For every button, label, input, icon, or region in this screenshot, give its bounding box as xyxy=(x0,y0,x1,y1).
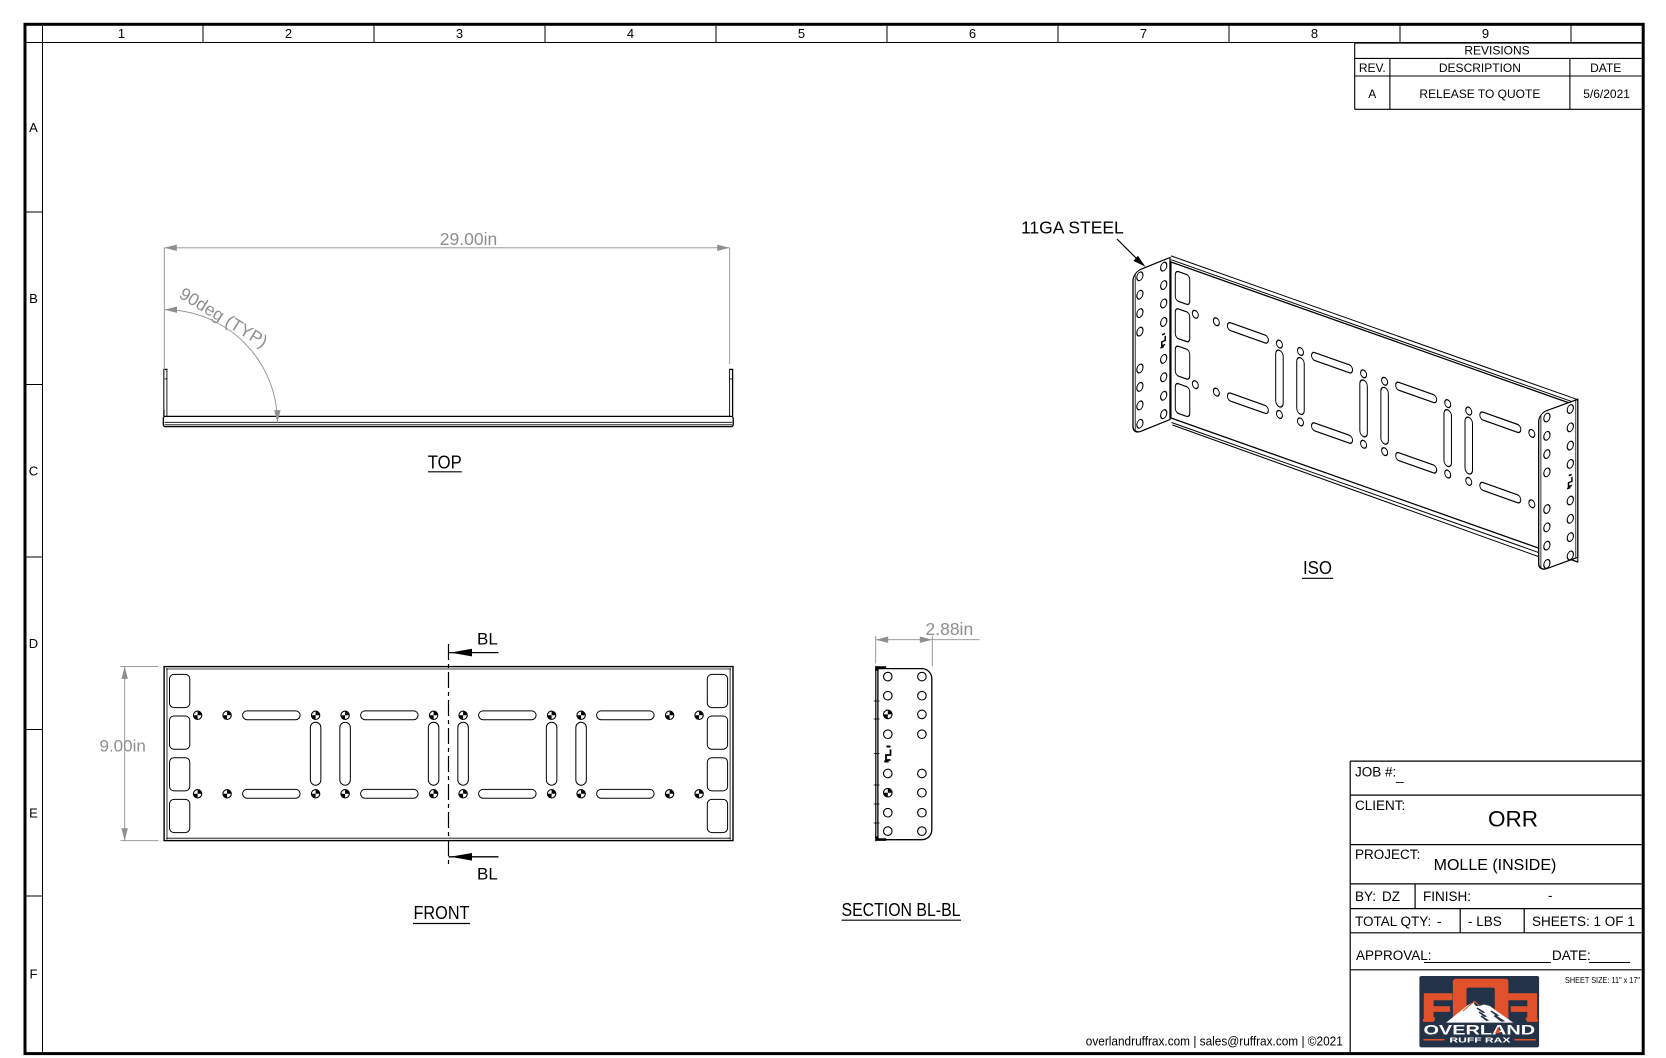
svg-text:PROJECT:: PROJECT: xyxy=(1355,847,1420,862)
svg-text:TOP: TOP xyxy=(428,453,462,473)
svg-text:11GA STEEL: 11GA STEEL xyxy=(1021,218,1124,238)
svg-text:OVERLAND: OVERLAND xyxy=(1423,1021,1535,1037)
svg-text:DATE:: DATE: xyxy=(1552,948,1591,963)
svg-text:6: 6 xyxy=(969,26,976,41)
svg-text:5/6/2021: 5/6/2021 xyxy=(1583,87,1630,101)
svg-text:C: C xyxy=(29,463,38,478)
svg-text:3: 3 xyxy=(456,26,463,41)
svg-text:APPROVAL:: APPROVAL: xyxy=(1356,948,1432,963)
svg-text:5: 5 xyxy=(798,26,805,41)
svg-text:ISO: ISO xyxy=(1303,558,1332,578)
svg-text:MOLLE (INSIDE): MOLLE (INSIDE) xyxy=(1434,857,1557,874)
svg-text:SHEET SIZE: 11" x 17": SHEET SIZE: 11" x 17" xyxy=(1565,975,1640,985)
svg-text:TOTAL QTY:: TOTAL QTY: xyxy=(1355,914,1431,929)
svg-text:DESCRIPTION: DESCRIPTION xyxy=(1439,61,1521,75)
svg-text:E: E xyxy=(29,805,38,820)
svg-text:9: 9 xyxy=(1482,26,1489,41)
svg-text:2: 2 xyxy=(285,26,292,41)
svg-text:4: 4 xyxy=(627,26,634,41)
svg-text:CLIENT:: CLIENT: xyxy=(1355,798,1405,813)
svg-text:ORR: ORR xyxy=(1488,807,1538,832)
svg-text:29.00in: 29.00in xyxy=(440,229,497,249)
svg-text:_: _ xyxy=(1395,768,1404,783)
svg-text:-: - xyxy=(1548,888,1553,903)
svg-text:9.00in: 9.00in xyxy=(100,736,146,755)
svg-text:1: 1 xyxy=(118,26,125,41)
svg-text:DATE: DATE xyxy=(1590,61,1621,75)
svg-text:REV.: REV. xyxy=(1359,61,1386,75)
svg-text:7: 7 xyxy=(1140,26,1147,41)
svg-text:DZ: DZ xyxy=(1382,889,1400,904)
svg-text:RELEASE TO QUOTE: RELEASE TO QUOTE xyxy=(1419,87,1540,101)
svg-text:FRONT: FRONT xyxy=(414,903,470,923)
svg-text:B: B xyxy=(29,291,38,306)
svg-text:BL: BL xyxy=(477,630,498,649)
svg-text:overlandruffrax.com | sales@r: overlandruffrax.com | sales@ruffrax.com … xyxy=(1086,1035,1343,1049)
svg-text:REVISIONS: REVISIONS xyxy=(1464,44,1529,58)
svg-text:-: - xyxy=(1437,914,1442,929)
svg-text:2.88in: 2.88in xyxy=(926,619,974,639)
svg-text:BL: BL xyxy=(477,865,498,884)
svg-text:BY:: BY: xyxy=(1355,889,1376,904)
svg-text:8: 8 xyxy=(1311,26,1318,41)
svg-text:SECTION BL-BL: SECTION BL-BL xyxy=(842,900,961,920)
svg-text:A: A xyxy=(1368,87,1376,101)
svg-text:- LBS: - LBS xyxy=(1468,914,1502,929)
svg-text:F: F xyxy=(30,967,38,982)
svg-text:A: A xyxy=(29,120,38,135)
svg-text:JOB #:: JOB #: xyxy=(1355,765,1396,780)
svg-text:D: D xyxy=(29,636,38,651)
svg-text:RUFF RAX: RUFF RAX xyxy=(1449,1037,1511,1044)
svg-text:SHEETS: 1 OF 1: SHEETS: 1 OF 1 xyxy=(1532,914,1635,929)
svg-text:FINISH:: FINISH: xyxy=(1423,889,1471,904)
